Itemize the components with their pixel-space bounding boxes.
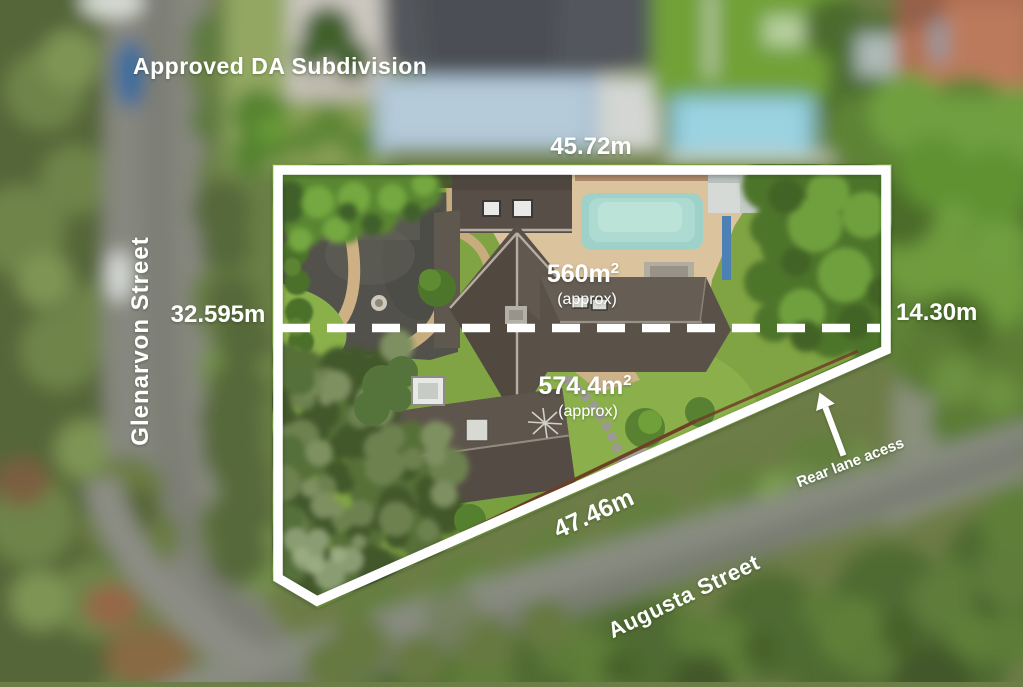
- svg-text:Glenarvon Street: Glenarvon Street: [127, 236, 154, 445]
- svg-text:45.72m: 45.72m: [550, 133, 631, 160]
- svg-text:(approx): (approx): [558, 403, 618, 420]
- svg-text:560m2: 560m2: [547, 260, 619, 288]
- svg-text:574.4m2: 574.4m2: [538, 372, 631, 400]
- svg-text:32.595m: 32.595m: [171, 301, 266, 328]
- svg-text:(approx): (approx): [557, 291, 617, 308]
- svg-text:Approved DA Subdivision: Approved DA Subdivision: [133, 53, 427, 79]
- svg-text:14.30m: 14.30m: [896, 299, 977, 326]
